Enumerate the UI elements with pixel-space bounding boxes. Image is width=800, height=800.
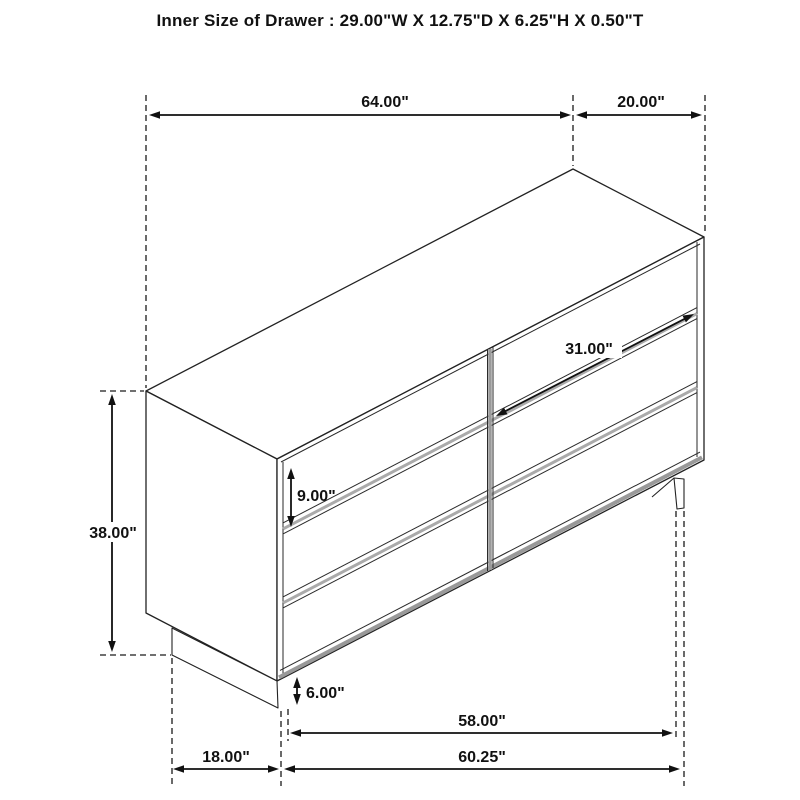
dresser-body bbox=[146, 169, 704, 708]
label-inner-span: 58.00" bbox=[458, 713, 506, 730]
label-overall-height: 38.00" bbox=[89, 525, 137, 542]
label-drawer-width: 31.00" bbox=[565, 341, 613, 358]
dimension-inner-span bbox=[290, 729, 673, 737]
dimension-overall-width bbox=[149, 111, 571, 119]
label-floor-width: 60.25" bbox=[458, 749, 506, 766]
dimension-base-depth bbox=[173, 765, 279, 773]
dimension-floor-width bbox=[284, 765, 680, 773]
dimension-overall-depth bbox=[576, 111, 702, 119]
label-leg-height: 6.00" bbox=[306, 685, 345, 702]
leg-face bbox=[674, 478, 684, 509]
drawing-canvas: Inner Size of Drawer : 29.00"W X 12.75"D… bbox=[0, 0, 800, 800]
dimension-leg-height bbox=[293, 677, 301, 705]
label-drawer-height: 9.00" bbox=[297, 488, 336, 505]
label-overall-depth: 20.00" bbox=[617, 94, 665, 111]
dresser-technical-drawing: 64.00" 20.00" 38.00" 9.00" 31.00" 6.00" … bbox=[0, 0, 800, 800]
label-base-depth: 18.00" bbox=[202, 749, 250, 766]
label-overall-width: 64.00" bbox=[361, 94, 409, 111]
